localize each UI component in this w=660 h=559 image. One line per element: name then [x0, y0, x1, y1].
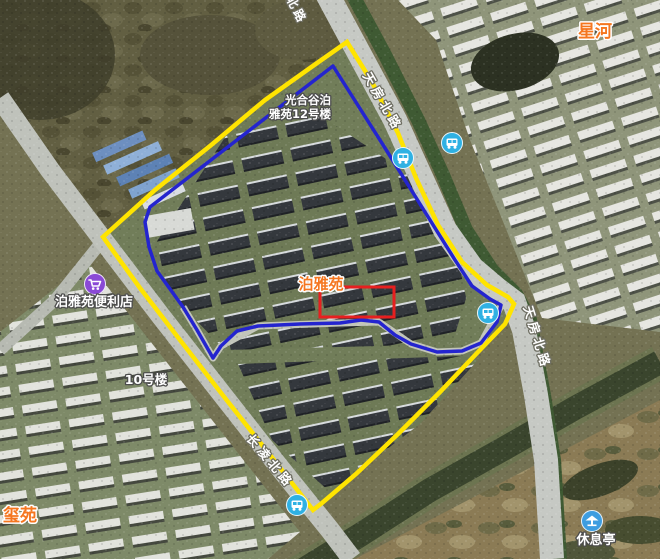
- bus-stop-icon[interactable]: [478, 303, 499, 324]
- poi-label-building10[interactable]: 10号楼: [125, 372, 168, 387]
- area-label-xiyuan[interactable]: 玺苑: [3, 505, 37, 526]
- poi-label-pavilion[interactable]: 休息亭: [575, 532, 615, 548]
- pavilion-icon[interactable]: [582, 511, 603, 532]
- map-viewport[interactable]: 北路 天房北路 天房北路 长凌北路 光合谷泊 雅苑12号楼 星河 泊雅苑 玺苑 …: [0, 0, 660, 559]
- building-label-line2: 雅苑12号楼: [268, 107, 332, 121]
- bus-stop-icon[interactable]: [442, 133, 463, 154]
- bus-stop-icon[interactable]: [287, 495, 308, 516]
- building-label-line1: 光合谷泊: [284, 93, 331, 107]
- poi-label-store[interactable]: 泊雅苑便利店: [55, 294, 133, 310]
- shopping-cart-icon[interactable]: [85, 274, 106, 295]
- bus-stop-icon[interactable]: [393, 148, 414, 169]
- area-label-xinghe[interactable]: 星河: [578, 22, 612, 42]
- area-label-boyayuan[interactable]: 泊雅苑: [298, 275, 343, 293]
